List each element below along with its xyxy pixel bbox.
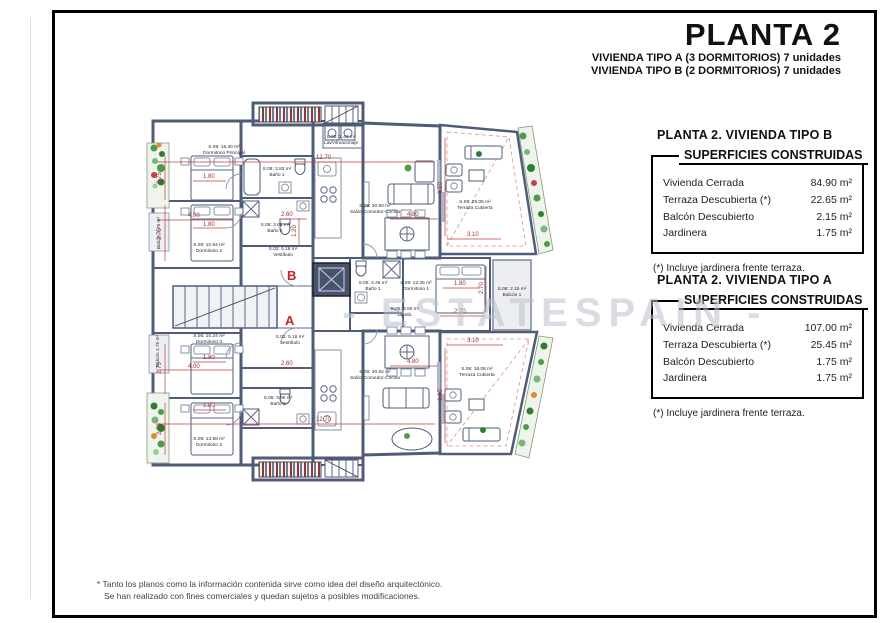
room-label-area: S.08: 3.61 m²: [261, 222, 290, 228]
unit-letter-a: A: [285, 313, 295, 328]
table-row: Vivienda Cerrada 107.00 m²: [663, 320, 852, 337]
panel-b-table: SUPERFICIES CONSTRUIDAS Vivienda Cerrada…: [651, 155, 864, 254]
dimension-text: 1.80: [454, 281, 466, 287]
title-block: PLANTA 2 VIVIENDA TIPO A (3 DORMITORIOS)…: [591, 19, 841, 79]
row-value: 25.45 m²: [811, 337, 852, 354]
room-label-name: Salón-Comedor-Cocina: [350, 209, 400, 215]
row-value: 1.75 m²: [816, 354, 852, 371]
dimension-text: 2.75: [157, 423, 163, 435]
panel-b-heading: PLANTA 2. VIVIENDA TIPO B: [657, 128, 864, 142]
kitchen-b: [315, 158, 341, 238]
dimension-text: 2.75: [157, 172, 163, 184]
dimension-text: 3.10: [467, 232, 479, 238]
row-value: 1.75 m²: [816, 370, 852, 387]
dimension-text: 4.00: [188, 364, 200, 370]
table-row: Jardinera 1.75 m²: [663, 225, 852, 242]
room-label-area: S.08: 1.43 m²: [327, 134, 356, 140]
subtitle-tipo-b: VIVIENDA TIPO B (2 DORMITORIOS) 7 unidad…: [591, 65, 841, 79]
row-label: Vivienda Cerrada: [663, 175, 744, 192]
room-label-area: S.06: 30.62 m²: [359, 369, 391, 375]
room-label-name: Baño 1: [365, 286, 381, 292]
room-label-name: Baño 2: [267, 228, 283, 234]
stair-block-top: [253, 103, 363, 125]
jardinera-right-top: [518, 126, 553, 254]
room-label-area: S.08: 2.15 m²: [498, 286, 527, 292]
room-label-name: Salón-Comedor-Cocina: [350, 375, 400, 381]
railing-top: [259, 107, 321, 122]
disclaimer-line1: * Tanto los planos como la información c…: [97, 578, 442, 591]
table-row: Terraza Descubierta (*) 25.45 m²: [663, 337, 852, 354]
room-label-name: Dormitorio 3: [196, 339, 222, 345]
row-value: 84.90 m²: [811, 175, 852, 192]
drawing-frame: PLANTA 2 VIVIENDA TIPO A (3 DORMITORIOS)…: [52, 10, 877, 618]
terrace-b-furniture: [446, 146, 502, 192]
dimension-text: 1.80: [203, 222, 215, 228]
row-value: 2.15 m²: [816, 209, 852, 226]
room-label-area: S.06: 10.24 m²: [193, 333, 225, 339]
room-label-area: S.02: 5.18 m²: [276, 334, 305, 340]
room-label-balcony-left-a: Balcón 1.75 m²: [155, 334, 161, 367]
room-label-name: Terraza Cubierta: [457, 205, 493, 211]
room-label-area: S.08: 3.83 m²: [263, 166, 292, 172]
panel-a-heading: PLANTA 2. VIVIENDA TIPO A: [657, 273, 864, 287]
room-label-area: S.08: 10.94 m²: [193, 242, 225, 248]
room-label-name: Dormitorio Principal: [203, 150, 245, 156]
dimension-text: 1.80: [203, 403, 215, 409]
room-label-name: Dormitorio 1: [403, 286, 429, 292]
dimension-text: 6.60: [438, 389, 444, 401]
room-label-name: Terraza Cubierta: [459, 372, 495, 378]
disclaimer: * Tanto los planos como la información c…: [97, 578, 442, 604]
room-label-name: Vestíbulo: [280, 340, 300, 346]
dimension-text: 1.80: [203, 174, 215, 180]
table-row: Balcón Descubierto 1.75 m²: [663, 354, 852, 371]
dimension-text: 2.70: [479, 282, 485, 294]
table-row: Vivienda Cerrada 84.90 m²: [663, 175, 852, 192]
table-row: Balcón Descubierto 2.15 m²: [663, 209, 852, 226]
row-label: Jardinera: [663, 370, 707, 387]
sheet-margin-line: [30, 18, 31, 598]
room-label-area: S.08: 30.50 m²: [359, 203, 391, 209]
panel-a-note: (*) Incluye jardinera frente terraza.: [651, 408, 864, 419]
room-label-name: Dormitorio 2: [196, 248, 222, 254]
dimension-text: 1.80: [203, 355, 215, 361]
table-row: Terraza Descubierta (*) 22.65 m²: [663, 192, 852, 209]
room-label-name: Distrib.: [398, 312, 413, 318]
room-label-area: S.05: 12.25 m²: [400, 280, 432, 286]
row-label: Terraza Descubierta (*): [663, 337, 771, 354]
row-label: Balcón Descubierto: [663, 354, 754, 371]
dimension-text: 4.00: [188, 213, 200, 219]
dimension-text: 2.60: [281, 212, 293, 218]
dimension-text: 6.60: [438, 182, 444, 194]
terrace-a-furniture: [445, 389, 500, 441]
jardinera-right-bottom: [515, 336, 553, 458]
table-row: Jardinera 1.75 m²: [663, 370, 852, 387]
room-label-area: S.06: 3.96 m²: [264, 395, 293, 401]
bathroom2-a-fixtures: [243, 389, 309, 425]
row-label: Balcón Descubierto: [663, 209, 754, 226]
dimension-text: 2.70: [454, 309, 466, 315]
panel-b-table-title: SUPERFICIES CONSTRUIDAS: [679, 148, 868, 165]
room-label-area: S.05: 3.60 m²: [391, 306, 420, 312]
row-label: Vivienda Cerrada: [663, 320, 744, 337]
floor-plan: 12.70 2.75 1.80 4.00 1.80 2.75 2.60 1.20…: [135, 98, 645, 488]
elevator: [313, 263, 350, 296]
dimension-text: 12.70: [316, 155, 332, 161]
page-title: PLANTA 2: [591, 19, 841, 52]
row-value: 22.65 m²: [811, 192, 852, 209]
bed-dormitorio1-a: [436, 265, 485, 313]
room-label-area: S.06: 13.58 m²: [193, 436, 225, 442]
dimension-text: 3.10: [467, 338, 479, 344]
room-label-name: Dormitorio 2: [196, 442, 222, 448]
railing-bottom: [259, 462, 321, 477]
dimension-text: 12.70: [316, 417, 332, 423]
dimension-text: 2.60: [281, 361, 293, 367]
room-label-name: Baño 1: [269, 172, 285, 178]
dimension-text: 1.20: [292, 225, 298, 237]
dimension-text: 4.80: [407, 212, 419, 218]
stairs-central: [173, 286, 277, 328]
room-label-name: Baño 2: [270, 401, 286, 407]
row-value: 107.00 m²: [805, 320, 852, 337]
room-label-area: S.08: 18.30 m²: [208, 144, 240, 150]
panel-a-table-title: SUPERFICIES CONSTRUIDAS: [679, 293, 868, 310]
living-room-a-furniture: [364, 327, 432, 450]
panel-vivienda-a: PLANTA 2. VIVIENDA TIPO A SUPERFICIES CO…: [651, 273, 864, 419]
room-label-area: S.02: 5.18 m²: [269, 246, 298, 252]
row-label: Terraza Descubierta (*): [663, 192, 771, 209]
stair-block-bottom: [253, 458, 363, 480]
room-label-name: Lav/Almacenaje: [324, 140, 358, 146]
panel-vivienda-b: PLANTA 2. VIVIENDA TIPO B SUPERFICIES CO…: [651, 128, 864, 274]
drawing-sheet: PLANTA 2 VIVIENDA TIPO A (3 DORMITORIOS)…: [0, 0, 881, 623]
row-value: 1.75 m²: [816, 225, 852, 242]
row-label: Jardinera: [663, 225, 707, 242]
subtitle-tipo-a: VIVIENDA TIPO A (3 DORMITORIOS) 7 unidad…: [591, 52, 841, 66]
dimension-text: 4.80: [407, 359, 419, 365]
room-label-area: S.08: 25.05 m²: [459, 199, 491, 205]
unit-letter-b: B: [287, 268, 296, 283]
room-label-balcony-left-b: Balcón 1.75 m²: [156, 216, 162, 249]
room-label-area: S.06: 18.08 m²: [461, 366, 493, 372]
room-label-name: Vestíbulo: [273, 252, 293, 258]
panel-a-table: SUPERFICIES CONSTRUIDAS Vivienda Cerrada…: [651, 300, 864, 399]
room-label-area: S.05: 4.46 m²: [359, 280, 388, 286]
disclaimer-line2: Se han realizado con fines comerciales y…: [104, 590, 442, 603]
room-label-name: Balcón 1: [503, 292, 522, 298]
